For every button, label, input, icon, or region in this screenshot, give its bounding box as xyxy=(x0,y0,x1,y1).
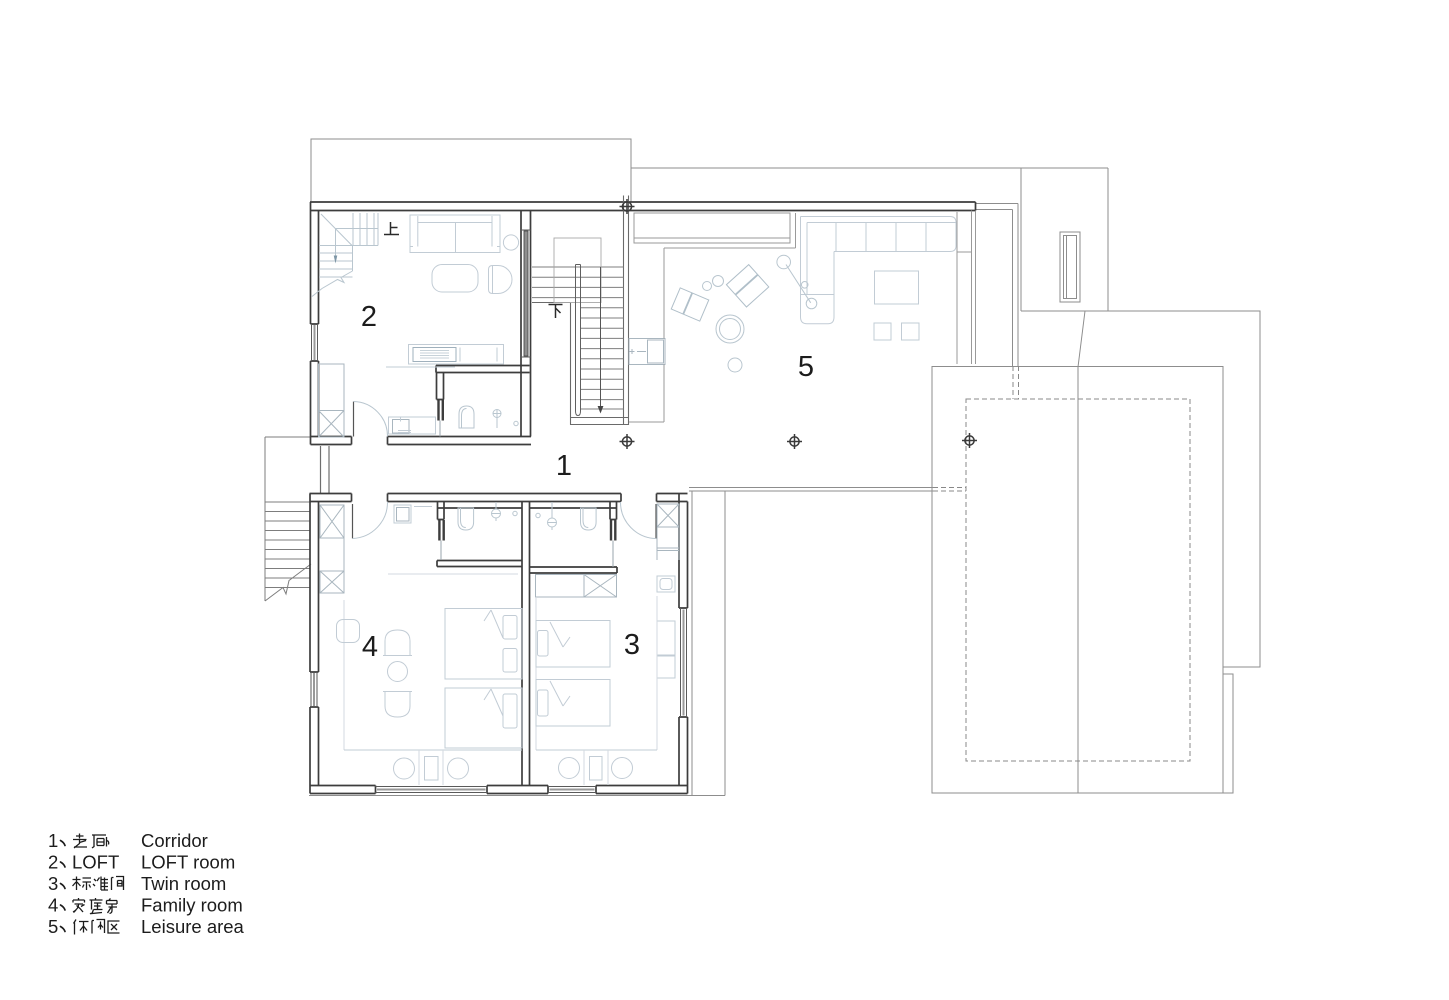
svg-text:3: 3 xyxy=(48,873,58,894)
svg-text:4: 4 xyxy=(48,895,58,916)
svg-text:LOFT room: LOFT room xyxy=(141,852,235,873)
svg-text:Family room: Family room xyxy=(141,895,243,916)
svg-text:3: 3 xyxy=(624,629,640,661)
svg-text:Leisure area: Leisure area xyxy=(141,916,245,937)
svg-text:LOFT: LOFT xyxy=(72,852,119,873)
svg-text:5: 5 xyxy=(48,916,58,937)
svg-text:Twin room: Twin room xyxy=(141,873,226,894)
svg-text:2: 2 xyxy=(361,301,377,333)
svg-text:Corridor: Corridor xyxy=(141,830,208,851)
svg-text:5: 5 xyxy=(798,351,814,383)
svg-text:1: 1 xyxy=(556,450,572,482)
svg-text:1: 1 xyxy=(48,830,58,851)
svg-text:4: 4 xyxy=(362,631,378,663)
svg-text:2: 2 xyxy=(48,852,58,873)
